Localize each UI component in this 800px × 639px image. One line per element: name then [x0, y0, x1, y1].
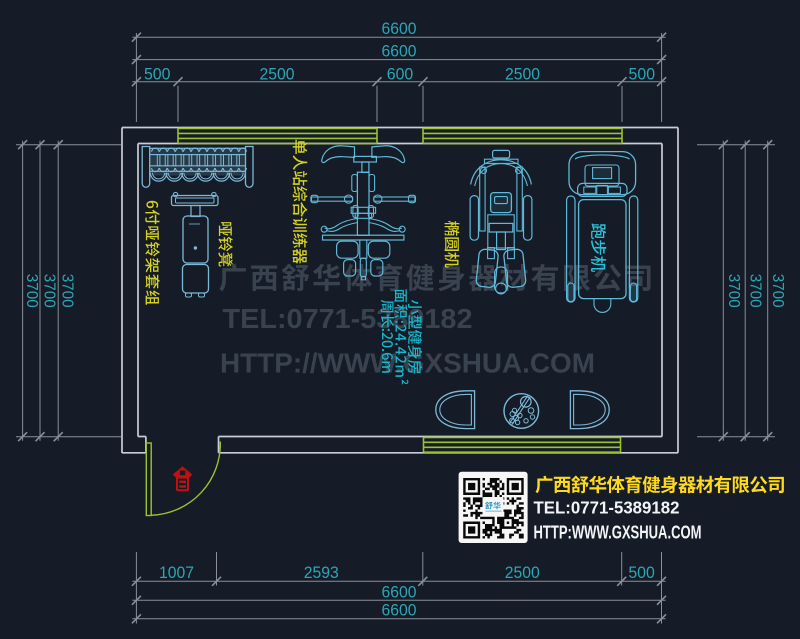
svg-text:HTTP://WWW.GXSHUA.COM: HTTP://WWW.GXSHUA.COM — [220, 348, 595, 379]
svg-text:3700: 3700 — [41, 274, 58, 308]
svg-text:2500: 2500 — [505, 65, 540, 83]
svg-text:3700: 3700 — [725, 274, 742, 308]
svg-text:2500: 2500 — [505, 564, 540, 582]
svg-text:6600: 6600 — [382, 20, 417, 38]
svg-text:3700: 3700 — [59, 274, 76, 308]
svg-text:3700: 3700 — [23, 274, 40, 308]
svg-text:3700: 3700 — [769, 274, 786, 308]
svg-text:6600: 6600 — [382, 601, 417, 619]
svg-text:2593: 2593 — [304, 564, 339, 582]
svg-text:2500: 2500 — [260, 65, 295, 83]
svg-text:1007: 1007 — [159, 564, 194, 582]
svg-text:6600: 6600 — [382, 583, 417, 601]
svg-text:HTTP:WWW.GXSHUA.COM: HTTP:WWW.GXSHUA.COM — [534, 522, 702, 543]
svg-text:3700: 3700 — [747, 274, 764, 308]
svg-text:6600: 6600 — [382, 43, 417, 61]
svg-text:600: 600 — [387, 65, 414, 83]
svg-text:500: 500 — [629, 65, 656, 83]
svg-text:TEL:0771-5389182: TEL:0771-5389182 — [534, 498, 680, 518]
svg-text:500: 500 — [144, 65, 171, 83]
svg-text:500: 500 — [628, 564, 655, 582]
svg-text:TEL:0771-5389182: TEL:0771-5389182 — [223, 303, 473, 334]
